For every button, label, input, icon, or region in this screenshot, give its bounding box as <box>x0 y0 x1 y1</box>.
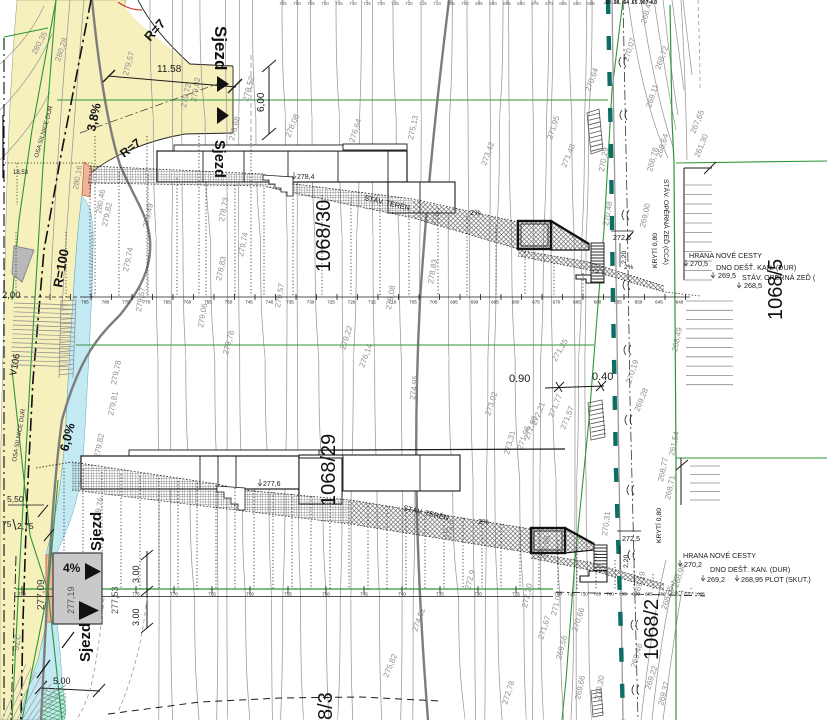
svg-text:710: 710 <box>580 592 588 597</box>
svg-text:650: 650 <box>635 300 643 305</box>
svg-text:665: 665 <box>573 300 581 305</box>
svg-text:670: 670 <box>553 300 561 305</box>
svg-text:Sjezd: Sjezd <box>88 512 105 551</box>
svg-text:680: 680 <box>512 300 520 305</box>
svg-text:695: 695 <box>450 300 458 305</box>
svg-text:2,75: 2,75 <box>17 521 34 531</box>
svg-text:785: 785 <box>81 300 89 305</box>
svg-text:6,00: 6,00 <box>256 92 267 112</box>
svg-text:730: 730 <box>474 592 482 597</box>
svg-text:655: 655 <box>614 300 622 305</box>
svg-text:277,53: 277,53 <box>110 586 120 614</box>
svg-text:700: 700 <box>606 592 614 597</box>
svg-text:710: 710 <box>389 300 397 305</box>
svg-text:0.90: 0.90 <box>509 373 530 385</box>
svg-text:Sjezd: Sjezd <box>77 623 94 662</box>
svg-text:DNO DEŠŤ. KAN. (DUR): DNO DEŠŤ. KAN. (DUR) <box>710 565 790 574</box>
svg-text:11.58: 11.58 <box>157 64 182 75</box>
svg-text:645: 645 <box>655 300 663 305</box>
svg-text:685: 685 <box>645 592 653 597</box>
svg-text:715: 715 <box>368 300 376 305</box>
svg-text:765: 765 <box>163 300 171 305</box>
svg-text:0.40: 0.40 <box>592 371 613 383</box>
svg-text:75: 75 <box>2 519 12 529</box>
svg-text:.60 .98, .64 .65 .967-4.0: .60 .98, .64 .65 .967-4.0 <box>604 0 657 6</box>
svg-text:660: 660 <box>594 300 602 305</box>
svg-text:STÁV. OPĚRNÁ ZEĎ (CCA): STÁV. OPĚRNÁ ZEĎ (CCA) <box>662 179 671 265</box>
svg-text:278,4: 278,4 <box>297 174 315 181</box>
svg-text:272,5: 272,5 <box>622 534 640 543</box>
svg-text:720: 720 <box>554 592 562 597</box>
svg-text:675: 675 <box>532 300 540 305</box>
svg-text:2%: 2% <box>478 517 489 526</box>
svg-text:KRYTÍ 0,80: KRYTÍ 0,80 <box>654 508 663 543</box>
svg-text:730: 730 <box>307 300 315 305</box>
svg-text:277,19: 277,19 <box>66 586 76 614</box>
svg-text:720: 720 <box>348 300 356 305</box>
svg-text:KRYTÍ 0,80: KRYTÍ 0,80 <box>650 233 659 268</box>
svg-text:270,2: 270,2 <box>684 560 702 569</box>
svg-text:269,2: 269,2 <box>707 575 725 584</box>
svg-text:277,6: 277,6 <box>263 481 281 488</box>
svg-text:760: 760 <box>184 300 192 305</box>
svg-text:5,50: 5,50 <box>7 494 24 504</box>
svg-text:750: 750 <box>225 300 233 305</box>
svg-text:770: 770 <box>143 300 151 305</box>
svg-text:Sjezd: Sjezd <box>211 26 230 70</box>
svg-text:3.00: 3.00 <box>131 608 141 626</box>
svg-text:1068/5: 1068/5 <box>765 259 787 320</box>
svg-text:Sjezd: Sjezd <box>211 140 227 178</box>
svg-text:780: 780 <box>102 300 110 305</box>
svg-text:735: 735 <box>286 300 294 305</box>
svg-text:745: 745 <box>245 300 253 305</box>
svg-text:4%: 4% <box>63 561 81 575</box>
svg-text:740: 740 <box>398 592 406 597</box>
svg-text:755: 755 <box>204 300 212 305</box>
svg-text:3.00: 3.00 <box>131 565 141 583</box>
svg-text:2,20: 2,20 <box>621 251 628 264</box>
svg-text:268,5: 268,5 <box>744 281 762 290</box>
svg-text:2%: 2% <box>470 208 481 217</box>
svg-text:2,00: 2,00 <box>2 290 21 301</box>
svg-text:705: 705 <box>409 300 417 305</box>
svg-text:735: 735 <box>436 592 444 597</box>
svg-text:277,09: 277,09 <box>36 579 47 610</box>
svg-text:740: 740 <box>266 300 274 305</box>
svg-text:775: 775 <box>132 592 140 597</box>
svg-text:5.00: 5.00 <box>53 676 71 686</box>
svg-text:670: 670 <box>684 592 692 597</box>
svg-text:755: 755 <box>284 592 292 597</box>
svg-text:675: 675 <box>671 592 679 597</box>
svg-text:1068/30: 1068/30 <box>313 200 335 272</box>
svg-text:760: 760 <box>246 592 254 597</box>
svg-text:685: 685 <box>491 300 499 305</box>
svg-text:690: 690 <box>471 300 479 305</box>
svg-text:8/3: 8/3 <box>315 692 337 720</box>
svg-text:775: 775 <box>122 300 130 305</box>
svg-text:665: 665 <box>697 592 705 597</box>
svg-text:HRANA NOVÉ CESTY: HRANA NOVÉ CESTY <box>683 551 756 560</box>
svg-text:269,5: 269,5 <box>718 271 736 280</box>
svg-text:680: 680 <box>658 592 666 597</box>
svg-text:2,20: 2,20 <box>623 555 630 568</box>
svg-text:640: 640 <box>676 300 684 305</box>
svg-text:765: 765 <box>208 592 216 597</box>
svg-text:690: 690 <box>632 592 640 597</box>
svg-text:1068/2: 1068/2 <box>641 599 663 660</box>
svg-text:745: 745 <box>360 592 368 597</box>
svg-text:790: 790 <box>18 592 26 597</box>
svg-text:725: 725 <box>327 300 335 305</box>
svg-text:268,95 PLOT (SKUT.): 268,95 PLOT (SKUT.) <box>741 575 811 584</box>
svg-text:725: 725 <box>512 592 520 597</box>
svg-text:2%: 2% <box>624 264 634 271</box>
svg-text:18,53: 18,53 <box>13 170 29 176</box>
svg-text:270,5: 270,5 <box>690 259 708 268</box>
svg-text:1068/29: 1068/29 <box>318 434 340 506</box>
svg-text:750: 750 <box>322 592 330 597</box>
svg-text:715: 715 <box>567 592 575 597</box>
svg-text:705: 705 <box>593 592 601 597</box>
svg-text:770: 770 <box>170 592 178 597</box>
svg-text:700: 700 <box>430 300 438 305</box>
